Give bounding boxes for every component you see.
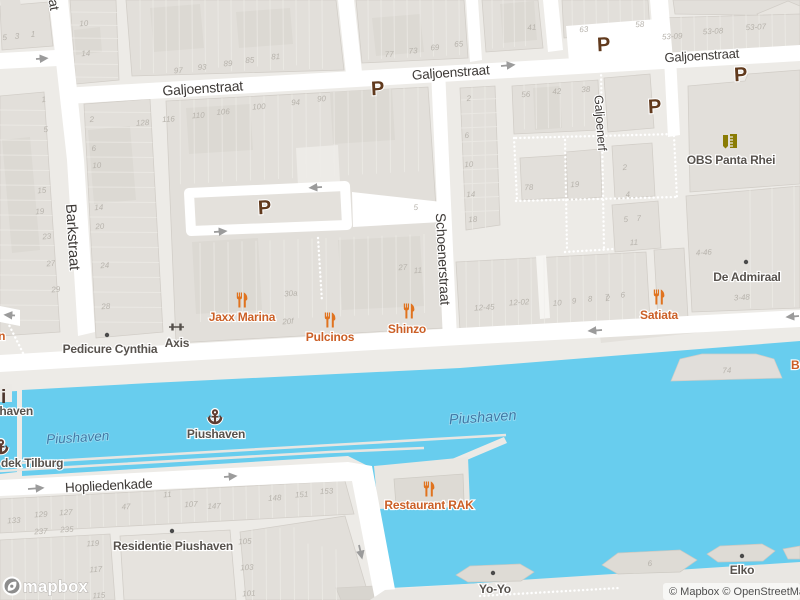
svg-text:11: 11 bbox=[413, 266, 422, 276]
svg-text:10: 10 bbox=[464, 160, 474, 170]
svg-text:12-02: 12-02 bbox=[509, 297, 531, 307]
svg-text:106: 106 bbox=[216, 107, 230, 117]
svg-text:74: 74 bbox=[722, 366, 732, 375]
svg-text:18: 18 bbox=[468, 215, 478, 225]
svg-text:53-08: 53-08 bbox=[703, 26, 724, 36]
svg-text:29: 29 bbox=[50, 285, 61, 295]
svg-text:Restaurant RAK: Restaurant RAK bbox=[384, 498, 474, 512]
svg-text:105: 105 bbox=[238, 537, 252, 547]
svg-text:© Mapbox © OpenStreetMap: © Mapbox © OpenStreetMap bbox=[669, 586, 800, 598]
svg-text:Piushaven: Piushaven bbox=[187, 427, 245, 441]
svg-text:De Admiraal: De Admiraal bbox=[713, 270, 780, 284]
svg-text:94: 94 bbox=[291, 98, 301, 108]
svg-text:14: 14 bbox=[81, 49, 91, 59]
svg-text:mapbox: mapbox bbox=[23, 578, 89, 596]
svg-text:P: P bbox=[733, 64, 747, 87]
svg-text:153: 153 bbox=[320, 486, 334, 496]
svg-text:14: 14 bbox=[466, 190, 476, 200]
svg-text:P: P bbox=[596, 34, 610, 57]
svg-text:151: 151 bbox=[295, 490, 309, 500]
svg-text:90: 90 bbox=[317, 94, 327, 104]
svg-text:10: 10 bbox=[79, 19, 89, 29]
svg-text:53-09: 53-09 bbox=[662, 31, 683, 41]
svg-text:81: 81 bbox=[271, 52, 280, 62]
svg-text:58: 58 bbox=[635, 20, 645, 30]
svg-text:47: 47 bbox=[121, 502, 131, 511]
svg-text:73: 73 bbox=[408, 46, 418, 56]
svg-text:Bo: Bo bbox=[791, 358, 800, 372]
svg-text:1: 1 bbox=[31, 30, 35, 39]
svg-text:P: P bbox=[257, 197, 271, 220]
svg-text:3: 3 bbox=[15, 32, 20, 41]
svg-text:53-07: 53-07 bbox=[745, 22, 766, 32]
svg-text:19: 19 bbox=[570, 180, 580, 190]
svg-text:28: 28 bbox=[100, 302, 111, 312]
svg-text:11: 11 bbox=[163, 490, 172, 499]
svg-text:Satiata: Satiata bbox=[640, 308, 678, 322]
svg-text:63: 63 bbox=[579, 25, 589, 35]
svg-text:127: 127 bbox=[59, 508, 73, 518]
svg-text:148: 148 bbox=[268, 493, 282, 503]
svg-text:65: 65 bbox=[454, 39, 464, 49]
svg-text:30a: 30a bbox=[284, 289, 298, 299]
svg-text:93: 93 bbox=[197, 62, 207, 72]
svg-text:69: 69 bbox=[430, 43, 440, 53]
svg-text:19: 19 bbox=[35, 207, 45, 217]
svg-text:237: 237 bbox=[33, 527, 48, 537]
svg-text:147: 147 bbox=[207, 501, 221, 511]
svg-text:133: 133 bbox=[7, 516, 21, 526]
svg-text:14: 14 bbox=[94, 203, 104, 213]
svg-text:Eten: Eten bbox=[0, 329, 5, 343]
svg-text:Yo-Yo: Yo-Yo bbox=[479, 582, 511, 596]
svg-text:10: 10 bbox=[92, 161, 102, 171]
svg-text:Pulcinos: Pulcinos bbox=[306, 330, 355, 344]
svg-text:89: 89 bbox=[223, 59, 233, 69]
svg-text:77: 77 bbox=[384, 50, 394, 60]
svg-text:116: 116 bbox=[162, 114, 176, 124]
svg-text:P: P bbox=[370, 78, 384, 101]
svg-text:85: 85 bbox=[245, 55, 255, 65]
svg-text:41: 41 bbox=[527, 23, 537, 33]
svg-text:101: 101 bbox=[242, 589, 256, 599]
svg-text:119: 119 bbox=[86, 539, 100, 549]
svg-text:107: 107 bbox=[184, 500, 198, 510]
svg-text:110: 110 bbox=[192, 111, 206, 121]
svg-text:129: 129 bbox=[34, 510, 48, 520]
svg-text:100: 100 bbox=[252, 102, 266, 112]
svg-text:117: 117 bbox=[89, 565, 103, 575]
svg-text:115: 115 bbox=[92, 591, 106, 600]
svg-text:42: 42 bbox=[552, 87, 562, 97]
svg-text:i: i bbox=[1, 387, 6, 408]
svg-text:12-45: 12-45 bbox=[474, 302, 496, 312]
svg-text:38: 38 bbox=[581, 85, 591, 95]
svg-text:97: 97 bbox=[174, 66, 184, 76]
svg-text:Residentie Piushaven: Residentie Piushaven bbox=[113, 539, 233, 553]
svg-text:78: 78 bbox=[524, 183, 534, 193]
svg-text:235: 235 bbox=[59, 525, 74, 535]
svg-text:dek Tilburg: dek Tilburg bbox=[1, 456, 63, 470]
svg-text:56: 56 bbox=[521, 90, 531, 100]
svg-text:OBS Panta Rhei: OBS Panta Rhei bbox=[687, 153, 776, 167]
svg-text:Axis: Axis bbox=[165, 336, 190, 350]
svg-text:P: P bbox=[647, 96, 661, 119]
svg-text:Jaxx Marina: Jaxx Marina bbox=[209, 310, 276, 324]
svg-text:4-46: 4-46 bbox=[696, 247, 713, 257]
svg-text:Pedicure Cynthia: Pedicure Cynthia bbox=[63, 342, 158, 356]
svg-text:Elko: Elko bbox=[730, 563, 755, 577]
svg-text:15: 15 bbox=[37, 186, 47, 196]
svg-text:27: 27 bbox=[45, 259, 56, 269]
svg-text:103: 103 bbox=[240, 563, 254, 573]
svg-text:23: 23 bbox=[41, 232, 52, 242]
svg-text:1: 1 bbox=[41, 95, 46, 104]
svg-text:20: 20 bbox=[94, 222, 105, 232]
svg-text:20f: 20f bbox=[281, 317, 294, 327]
svg-text:128: 128 bbox=[136, 118, 150, 128]
svg-text:Shinzo: Shinzo bbox=[388, 322, 426, 336]
svg-text:10: 10 bbox=[552, 298, 562, 308]
svg-text:3-48: 3-48 bbox=[734, 292, 751, 302]
svg-text:27: 27 bbox=[397, 263, 408, 273]
svg-text:24: 24 bbox=[99, 261, 110, 271]
svg-text:11: 11 bbox=[629, 238, 638, 248]
